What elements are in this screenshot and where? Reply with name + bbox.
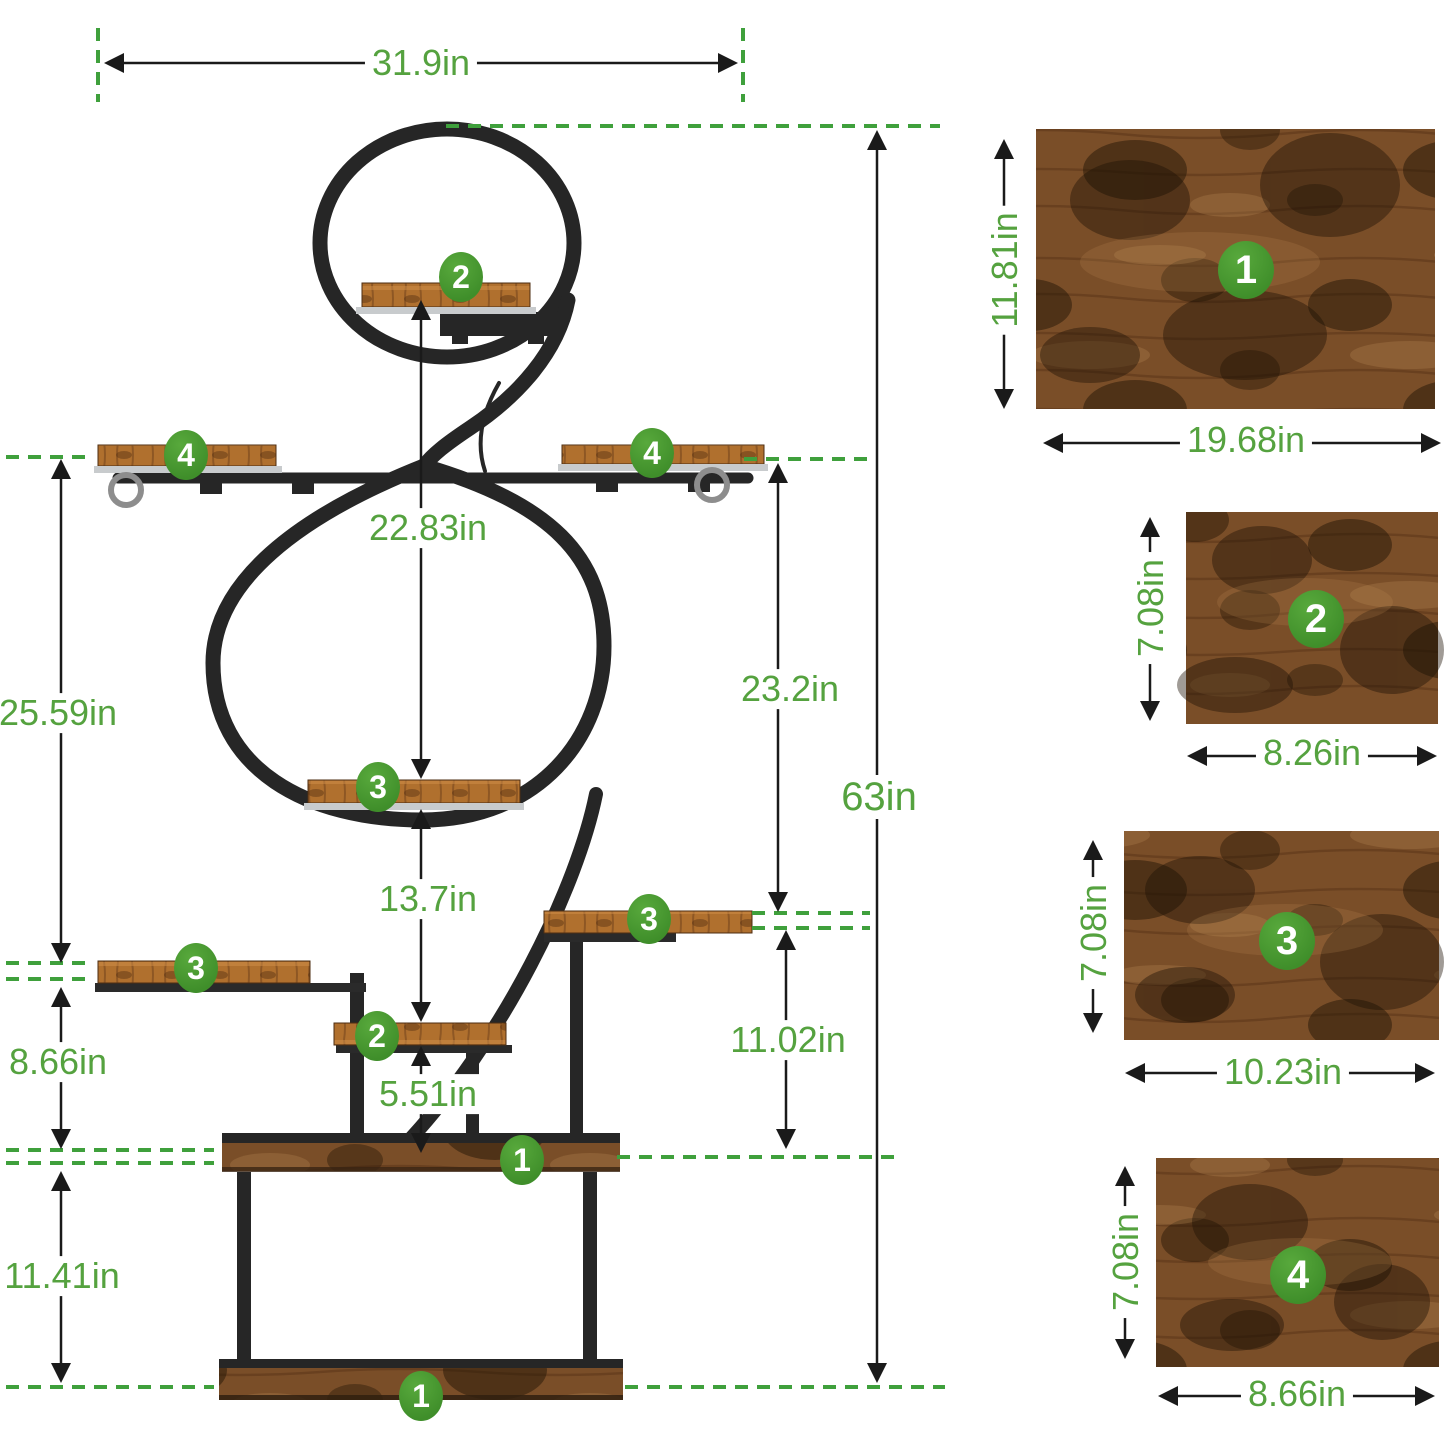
foot [200,482,222,494]
base-lower-rim [219,1359,623,1368]
bracket-shelf2-top [440,312,560,336]
foot [596,480,618,492]
shelf3-center-wood [308,780,520,803]
base-upper-shadow [222,1167,620,1172]
shelf-badge-2-lower: 2 [355,1011,399,1061]
dim-label-shelf2-shelf3: 22.83in [362,508,494,548]
post-right [570,934,583,1148]
panel2-width-label: 8.26in [1256,733,1368,773]
panel-badge-2: 2 [1288,590,1344,648]
dim-label-base-height: 11.41in [0,1256,127,1296]
panel3-height-label: 7.08in [1074,877,1114,989]
shelf-badge-4-left: 4 [164,430,208,480]
dim-label-shelf3-shelf2: 13.7in [372,879,484,919]
foot [528,336,544,344]
dim-label-total-height: 63in [834,775,924,819]
shelf-badge-3-center: 3 [356,762,400,812]
panel-badge-3: 3 [1259,912,1315,970]
leg-left [237,1172,251,1364]
panel-badge-1: 1 [1218,241,1274,299]
panel2-height-label: 7.08in [1131,552,1171,664]
dim-label-right-upper: 23.2in [734,669,846,709]
shelf2-top-rail [356,307,536,314]
shelf-badge-1-upper: 1 [500,1135,544,1185]
shelf-badge-3-left: 3 [174,943,218,993]
panel3-width-label: 10.23in [1217,1052,1349,1092]
panel1-height-label: 11.81in [985,205,1025,334]
foot [452,336,468,344]
shelf-badge-1-lower: 1 [399,1371,443,1421]
wood-panels [1004,129,1444,1396]
dim-label-left-mid: 8.66in [2,1042,114,1082]
shelf-badge-4-right: 4 [630,428,674,478]
diagram-line-art [0,0,1445,1445]
dim-label-shelf2-base: 5.51in [372,1074,484,1114]
panel1-width-label: 19.68in [1180,420,1312,460]
leg-right [583,1172,597,1364]
post-left [350,973,364,1148]
shelf-badge-3-right: 3 [627,894,671,944]
plant-stand-dimension-diagram: 31.9in 22.83in 25.59in 23.2in 63in 13.7i… [0,0,1445,1445]
bracket-shelf3-left [95,983,366,992]
panel4-width-label: 8.66in [1241,1374,1353,1414]
dim-label-right-lower: 11.02in [723,1020,852,1060]
panel4-height-label: 7.08in [1106,1206,1146,1318]
dim-label-left-upper: 25.59in [0,693,124,733]
frame-wire [481,383,499,471]
foot [292,482,314,494]
shelf-badge-2-top: 2 [439,252,483,302]
dim-label-top-width: 31.9in [365,43,477,83]
shelf3-center-rail [304,803,524,810]
stand-frame [118,129,748,1148]
panel-badge-4: 4 [1270,1246,1326,1304]
